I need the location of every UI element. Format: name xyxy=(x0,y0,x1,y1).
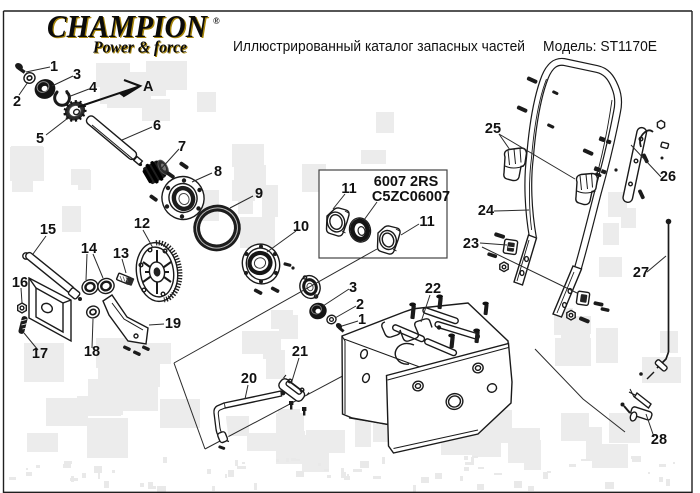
svg-text:16: 16 xyxy=(12,275,28,291)
svg-text:5: 5 xyxy=(36,131,44,147)
svg-text:A: A xyxy=(143,79,154,95)
svg-text:Иллюстрированный каталог запас: Иллюстрированный каталог запасных частей xyxy=(233,38,525,55)
svg-text:1: 1 xyxy=(50,59,58,75)
svg-text:Power & force: Power & force xyxy=(92,38,187,57)
svg-text:14: 14 xyxy=(81,241,97,257)
svg-text:26: 26 xyxy=(660,169,676,185)
svg-text:6007 2RS: 6007 2RS xyxy=(374,174,439,190)
svg-text:9: 9 xyxy=(255,186,263,202)
svg-text:28: 28 xyxy=(651,432,667,448)
svg-text:2: 2 xyxy=(356,297,364,313)
svg-text:25: 25 xyxy=(485,121,501,137)
svg-text:23: 23 xyxy=(463,236,479,252)
svg-text:11: 11 xyxy=(341,181,356,197)
svg-text:21: 21 xyxy=(292,344,308,360)
svg-text:27: 27 xyxy=(633,265,649,281)
svg-text:7: 7 xyxy=(178,139,186,155)
svg-text:13: 13 xyxy=(113,246,129,262)
svg-text:22: 22 xyxy=(425,281,441,297)
svg-text:®: ® xyxy=(213,16,220,26)
svg-text:20: 20 xyxy=(241,371,257,387)
svg-text:11: 11 xyxy=(419,214,434,230)
svg-text:3: 3 xyxy=(73,67,81,83)
svg-text:24: 24 xyxy=(478,203,494,219)
svg-text:Модель: ST1170E: Модель: ST1170E xyxy=(543,38,657,55)
svg-text:1: 1 xyxy=(358,312,366,328)
svg-text:C5ZC06007: C5ZC06007 xyxy=(372,189,450,205)
svg-text:2: 2 xyxy=(13,94,21,110)
svg-text:10: 10 xyxy=(293,219,309,235)
svg-text:6: 6 xyxy=(153,118,161,134)
svg-text:8: 8 xyxy=(214,164,222,180)
svg-text:18: 18 xyxy=(84,344,100,360)
svg-text:17: 17 xyxy=(32,346,48,362)
svg-text:4: 4 xyxy=(89,80,97,96)
svg-text:15: 15 xyxy=(40,222,56,238)
svg-text:12: 12 xyxy=(134,216,150,232)
svg-text:3: 3 xyxy=(349,280,357,296)
svg-text:19: 19 xyxy=(165,316,181,332)
